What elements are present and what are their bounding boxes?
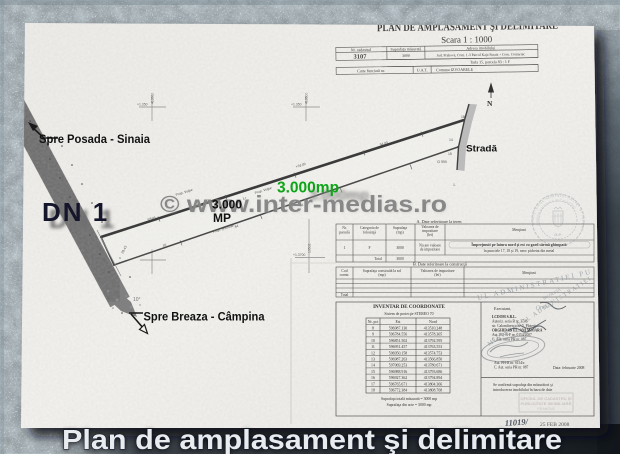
svg-text:Stradă: Stradă	[466, 144, 498, 155]
svg-text:413574.753: 413574.753	[424, 351, 443, 355]
svg-text:3.000mp: 3.000mp	[277, 180, 339, 197]
svg-text:INVENTAR DE COORDONATE: INVENTAR DE COORDONATE	[373, 305, 445, 310]
svg-text:Nr. pct: Nr. pct	[368, 320, 380, 324]
svg-text:596784.556: 596784.556	[389, 333, 408, 337]
svg-text:U.A.T.: U.A.T.	[417, 67, 428, 72]
svg-text:Carte funciară nr.: Carte funciară nr.	[357, 68, 385, 73]
svg-text:Spre Breaza - Câmpina: Spre Breaza - Câmpina	[144, 310, 265, 324]
svg-text:596987.263: 596987.263	[389, 358, 408, 362]
svg-text:Suprafaţa: Suprafaţa	[393, 226, 407, 230]
svg-text:Data: februarie 2008: Data: februarie 2008	[553, 366, 585, 370]
svg-text:596988.916: 596988.916	[389, 370, 408, 374]
svg-text:Se confirmă suprafaţa din măsu: Se confirmă suprafaţa din măsurători şi	[493, 383, 553, 387]
svg-text:introducerea imobilului în baz: introducerea imobilului în baza de date	[493, 388, 553, 392]
svg-text:+1.350: +1.350	[137, 103, 148, 107]
svg-text:Suprafaţa din acte = 3000 mp: Suprafaţa din acte = 3000 mp	[387, 403, 432, 407]
svg-text:de impozitare: de impozitare	[420, 248, 441, 252]
svg-text:18: 18	[461, 115, 465, 119]
svg-text:G.P.: G.P.	[554, 232, 562, 237]
svg-text:596987.130: 596987.130	[389, 327, 408, 331]
svg-text:597069.253: 597069.253	[389, 364, 408, 368]
svg-text:Comuna IZVOARELE: Comuna IZVOARELE	[436, 67, 474, 73]
svg-text:Suprafaţa totală măsurată = 30: Suprafaţa totală măsurată = 3000 mp	[381, 397, 437, 401]
svg-text:(mp): (mp)	[378, 273, 386, 277]
svg-text:PUBLICITATE IMOBILIARĂ: PUBLICITATE IMOBILIARĂ	[521, 401, 572, 406]
svg-text:Categoria de: Categoria de	[360, 226, 379, 230]
svg-text:Sistem de proiecţie STEREO 70: Sistem de proiecţie STEREO 70	[384, 312, 433, 316]
svg-text:MP: MP	[213, 211, 231, 225]
svg-text:3107: 3107	[353, 53, 367, 60]
svg-text:constr.: constr.	[340, 273, 350, 277]
svg-text:+1.350: +1.350	[291, 103, 302, 107]
svg-text:Scara 1 : 1000: Scara 1 : 1000	[441, 34, 493, 45]
svg-text:Plan de amplasament şi delimit: Plan de amplasament şi delimitare	[62, 424, 562, 454]
svg-text:596851.502: 596851.502	[389, 339, 408, 343]
svg-text:Total: Total	[341, 293, 349, 297]
svg-text:413793.686: 413793.686	[424, 370, 443, 374]
svg-text:F: F	[368, 246, 370, 250]
svg-text:C. Aut. seria PH nr. 087: C. Aut. seria PH nr. 087	[494, 366, 529, 370]
svg-text:Împrejmuit pe latura nord şi e: Împrejmuit pe latura nord şi est cu gard…	[471, 242, 566, 247]
svg-text:413804.366: 413804.366	[424, 382, 443, 386]
svg-text:596765.671: 596765.671	[389, 382, 408, 386]
svg-text:413500: 413500	[151, 93, 155, 104]
svg-text:3000: 3000	[402, 53, 410, 58]
svg-text:N: N	[487, 99, 493, 108]
svg-text:Nord: Nord	[429, 320, 437, 324]
svg-text:1: 1	[344, 246, 346, 250]
svg-text:Menţiuni: Menţiuni	[522, 271, 536, 275]
svg-text:Nr. cadastral: Nr. cadastral	[351, 47, 372, 52]
svg-text:15: 15	[371, 370, 375, 374]
svg-text:3.000: 3.000	[212, 198, 242, 212]
svg-text:Suprafaţa măsurată: Suprafaţa măsurată	[390, 46, 421, 51]
svg-text:413578.305: 413578.305	[424, 333, 443, 337]
svg-text:11: 11	[371, 345, 375, 349]
svg-text:folosinţă: folosinţă	[363, 231, 376, 235]
svg-text:596772.384: 596772.384	[389, 389, 408, 393]
svg-text:A. Date referitoare la teren: A. Date referitoare la teren	[417, 219, 463, 224]
svg-text:16: 16	[371, 376, 375, 380]
svg-text:413792.595: 413792.595	[424, 339, 443, 343]
svg-text:14: 14	[371, 364, 375, 368]
svg-text:413500: 413500	[305, 93, 309, 104]
svg-text:413510.248: 413510.248	[424, 327, 443, 331]
svg-text:+1.3700: +1.3700	[293, 253, 305, 257]
svg-text:Nr.: Nr.	[342, 226, 347, 230]
svg-text:9: 9	[372, 333, 374, 337]
svg-text:596951.457: 596951.457	[389, 345, 408, 349]
svg-text:DN 1: DN 1	[42, 197, 109, 227]
svg-text:13502: 13502	[308, 243, 312, 253]
svg-text:413808.768: 413808.768	[424, 389, 443, 393]
svg-text:10°: 10°	[133, 297, 141, 303]
svg-text:13: 13	[371, 358, 375, 362]
svg-text:(lei): (lei)	[427, 233, 434, 237]
svg-text:12: 12	[371, 351, 375, 355]
svg-text:10: 10	[371, 339, 375, 343]
svg-text:3000: 3000	[396, 257, 404, 261]
svg-text:413763.553: 413763.553	[424, 345, 443, 349]
svg-text:Adresa imobilului: Adresa imobilului	[466, 45, 496, 50]
svg-text:parcelă: parcelă	[339, 231, 350, 235]
svg-text:8: 8	[372, 327, 374, 331]
svg-text:596950.158: 596950.158	[389, 351, 408, 355]
svg-text:PRAHOVA: PRAHOVA	[537, 407, 555, 411]
svg-text:Total: Total	[374, 257, 382, 261]
svg-text:1.: 1.	[453, 183, 456, 187]
svg-text:14: 14	[449, 138, 453, 142]
svg-text:B. Date referitoare la constru: B. Date referitoare la construcţii	[413, 262, 468, 267]
svg-text:18: 18	[371, 389, 375, 393]
svg-text:413794.894: 413794.894	[424, 376, 443, 380]
svg-text:LCDOM S.R.L.: LCDOM S.R.L.	[492, 315, 516, 319]
svg-text:(mp): (mp)	[396, 231, 404, 235]
svg-text:413780.671: 413780.671	[424, 364, 443, 368]
svg-text:15: 15	[448, 152, 452, 156]
svg-text:17: 17	[371, 382, 375, 386]
svg-text:(lei): (lei)	[434, 273, 441, 277]
svg-text:3000: 3000	[396, 246, 404, 250]
svg-text:Ci 990: Ci 990	[437, 160, 447, 164]
svg-text:Spre Posada - Sinaia: Spre Posada - Sinaia	[39, 132, 150, 146]
svg-text:Menţiuni: Menţiuni	[512, 228, 526, 232]
svg-text:413566.850: 413566.850	[424, 358, 443, 362]
svg-text:596927.362: 596927.362	[389, 376, 408, 380]
